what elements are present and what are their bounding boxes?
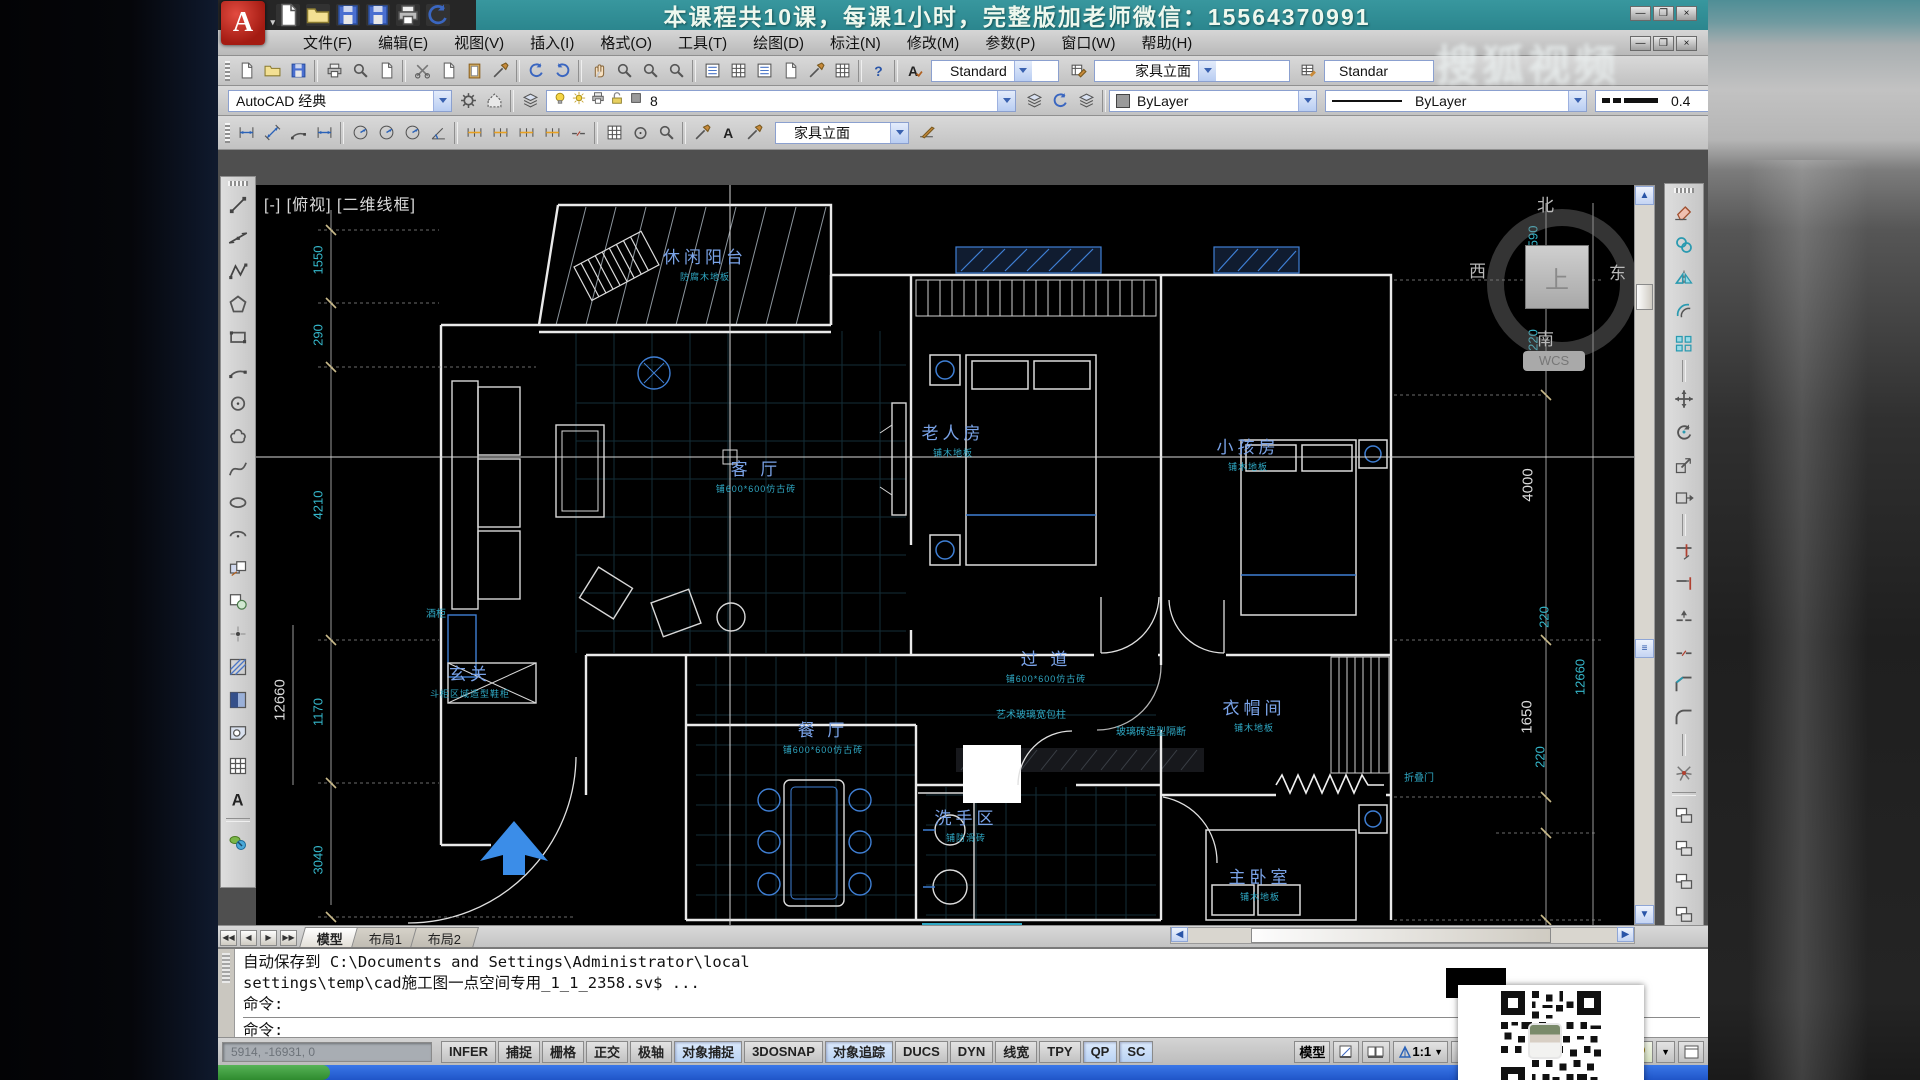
vscroll-thumb[interactable]: [1636, 284, 1653, 310]
plan-annotation: 折叠门: [1404, 769, 1434, 784]
layer-properties-icon[interactable]: [517, 88, 543, 114]
annotation-scale-pair-icon[interactable]: [224, 825, 252, 858]
status-toggle-极轴[interactable]: 极轴: [630, 1041, 672, 1063]
dim-left-4210: 4210: [311, 491, 326, 520]
compass-south[interactable]: 南: [1537, 325, 1554, 350]
restore-icon[interactable]: ❐: [1653, 6, 1674, 21]
break-at-point-icon[interactable]: [1670, 602, 1698, 635]
svg-text:A: A: [723, 125, 733, 141]
compass-north[interactable]: 北: [1537, 191, 1554, 216]
doc-close-icon[interactable]: ×: [1676, 36, 1697, 51]
status-toggle-DYN[interactable]: DYN: [950, 1041, 993, 1063]
dim-quick-icon[interactable]: [461, 120, 487, 146]
make-object-layer-icon[interactable]: [1021, 88, 1047, 114]
linetype-sample: [1332, 100, 1402, 102]
dim-right-12660: 12660: [1573, 659, 1588, 695]
fillet-icon[interactable]: [1670, 701, 1698, 734]
mdi-background: A: [218, 150, 1708, 1037]
qr-center-photo: [1528, 1023, 1562, 1059]
doc-restore-icon[interactable]: ❐: [1653, 36, 1674, 51]
menu-bar: 文件(F)编辑(E)视图(V)插入(I)格式(O)工具(T)绘图(D)标注(N)…: [218, 30, 1708, 56]
mtext-icon[interactable]: A: [224, 782, 252, 815]
plot-icon[interactable]: [321, 58, 347, 84]
dim-right-1650: 1650: [1519, 700, 1536, 733]
horizontal-scrollbar[interactable]: ◀ ▶: [1170, 927, 1635, 944]
dim-break-icon[interactable]: [565, 120, 591, 146]
plan-annotation: 艺术玻璃宽包柱: [996, 706, 1066, 721]
toolbar-separator: [594, 122, 598, 144]
dim-style-dropdown-top[interactable]: 家具立面: [1094, 60, 1290, 82]
window-buttons-app: — ❐ ×: [1630, 6, 1697, 21]
menu-item-12[interactable]: 帮助(H): [1128, 30, 1205, 55]
toolbar-separator: [402, 60, 406, 82]
region-icon[interactable]: [224, 716, 252, 749]
plan-annotation: 玻璃砖造型隔断: [1116, 723, 1186, 738]
plot-preview-icon[interactable]: [347, 58, 373, 84]
help-icon[interactable]: ?: [865, 58, 891, 84]
ellipse-icon[interactable]: [224, 485, 252, 518]
mirror-icon[interactable]: [1670, 261, 1698, 294]
room-label: 休闲阳台防腐木地板: [663, 243, 747, 283]
dim-left-12660: 12660: [272, 679, 289, 721]
dim-ordinate-icon[interactable]: [311, 120, 337, 146]
chevron-down-icon[interactable]: [1568, 91, 1586, 111]
arc-icon[interactable]: [224, 353, 252, 386]
gear-icon[interactable]: [455, 88, 481, 114]
room-label: 餐 厅铺600*600仿古砖: [783, 716, 864, 756]
lineweight-dropdown[interactable]: 0.4: [1595, 90, 1708, 112]
dim-aligned-icon[interactable]: [259, 120, 285, 146]
standard-toolbar: ? A Standard 家具立面 Standar: [218, 56, 1708, 86]
chevron-down-icon[interactable]: [1014, 61, 1032, 81]
group-icon[interactable]: [1670, 799, 1698, 832]
dim-continue-icon[interactable]: [513, 120, 539, 146]
make-block-icon[interactable]: [224, 584, 252, 617]
scroll-left-icon[interactable]: ◀: [1171, 927, 1188, 942]
workspace-dropdown[interactable]: AutoCAD 经典: [228, 90, 452, 112]
command-grip[interactable]: [218, 949, 235, 1037]
chevron-down-icon[interactable]: [1198, 61, 1216, 81]
tab-布局2[interactable]: 布局2: [410, 927, 479, 948]
copy-clip-icon[interactable]: [435, 58, 461, 84]
dim-space-icon[interactable]: [539, 120, 565, 146]
menu-item-5[interactable]: 格式(O): [587, 30, 665, 55]
undo-icon[interactable]: [426, 4, 450, 26]
open-icon[interactable]: [259, 58, 285, 84]
toolbar-separator: [1682, 360, 1686, 382]
status-toggle-对象捕捉[interactable]: 对象捕捉: [674, 1041, 742, 1063]
gradient-icon[interactable]: [224, 683, 252, 716]
layer-name: 8: [643, 93, 665, 109]
annotation-scale-value: 1:1: [1412, 1044, 1431, 1059]
plan-annotation: 酒柜: [426, 605, 446, 620]
hscroll-thumb[interactable]: [1251, 928, 1551, 943]
status-menu-chevron-icon[interactable]: ▼: [1656, 1041, 1675, 1063]
layer-dropdown[interactable]: 8: [546, 90, 1016, 112]
dim-tolerance-icon[interactable]: [601, 120, 627, 146]
viewcube-top[interactable]: 上: [1525, 245, 1589, 309]
toolbar-separator: [682, 122, 686, 144]
menu-item-11[interactable]: 窗口(W): [1048, 30, 1128, 55]
polygon-icon[interactable]: [224, 287, 252, 320]
dim-diameter-icon[interactable]: [399, 120, 425, 146]
new-icon[interactable]: [276, 4, 300, 26]
move-icon[interactable]: [1670, 382, 1698, 415]
text-style-dropdown[interactable]: Standard: [931, 60, 1059, 82]
toolbar-separator: [858, 60, 862, 82]
title-bar-banner: 本课程共10课，每课1小时，完整版加老师微信：15564370991: [476, 0, 1708, 30]
point-icon[interactable]: [224, 617, 252, 650]
trim-icon[interactable]: [1670, 536, 1698, 569]
toolbar-separator: [692, 60, 696, 82]
plot-icon[interactable]: [396, 4, 420, 26]
room-label: 主卧室铺木地板: [1229, 863, 1292, 903]
rotate-icon[interactable]: [1670, 415, 1698, 448]
spline-icon[interactable]: [224, 452, 252, 485]
scale-icon[interactable]: [1670, 448, 1698, 481]
dim-left-3040: 3040: [311, 846, 326, 875]
table-icon[interactable]: [224, 749, 252, 782]
text-style-icon[interactable]: A: [901, 58, 927, 84]
tool-palettes-icon[interactable]: [751, 58, 777, 84]
annotation-scale-button[interactable]: 1:1▼: [1393, 1041, 1448, 1063]
offset-icon[interactable]: [1670, 294, 1698, 327]
table-style-icon[interactable]: [1295, 58, 1321, 84]
coordinate-readout: 5914, -16931, 0: [222, 1042, 432, 1062]
dim-right-220: 220: [1533, 746, 1548, 768]
tab-last-icon[interactable]: ▶▶: [280, 930, 297, 946]
quick-access-toolbar: [276, 3, 450, 27]
chevron-down-icon[interactable]: [890, 123, 908, 143]
dim-arc-length-icon[interactable]: [285, 120, 311, 146]
menu-item-9[interactable]: 修改(M): [894, 30, 973, 55]
menu-item-8[interactable]: 标注(N): [817, 30, 894, 55]
layer-states-icon[interactable]: [1073, 88, 1099, 114]
status-toggle-INFER[interactable]: INFER: [441, 1041, 496, 1063]
quick-view-layouts-icon[interactable]: [1362, 1041, 1390, 1063]
zoom-realtime-icon[interactable]: [611, 58, 637, 84]
status-toggle-栅格[interactable]: 栅格: [542, 1041, 584, 1063]
scroll-up-icon[interactable]: ▲: [1635, 186, 1654, 205]
toolbar-separator: [578, 60, 582, 82]
scroll-down-icon[interactable]: ▼: [1635, 905, 1654, 924]
extend-icon[interactable]: [1670, 569, 1698, 602]
layers-properties-toolbar: AutoCAD 经典 8 ByLayer ByLayer: [218, 86, 1708, 116]
view-compass[interactable]: 北 西 东 南 上 WCS: [1481, 199, 1634, 389]
status-toggle-捕捉[interactable]: 捕捉: [498, 1041, 540, 1063]
quickcalc-icon[interactable]: [829, 58, 855, 84]
sheetset-manager-icon[interactable]: [777, 58, 803, 84]
toolbar-separator: [1682, 514, 1686, 536]
save-icon[interactable]: [336, 4, 360, 26]
dim-radius-icon[interactable]: [347, 120, 373, 146]
save-as-icon[interactable]: [366, 4, 390, 26]
dim-style-dropdown[interactable]: 家具立面: [775, 122, 909, 144]
status-toggle-SC[interactable]: SC: [1119, 1041, 1153, 1063]
chamfer-icon[interactable]: [1670, 668, 1698, 701]
tab-first-icon[interactable]: ◀◀: [220, 930, 237, 946]
plan-labels-layer: 休闲阳台防腐木地板客 厅铺600*600仿古砖老人房铺木地板小孩房铺木地板过 道…: [256, 185, 1634, 925]
room-label: 客 厅铺600*600仿古砖: [716, 455, 797, 495]
zoom-window-icon[interactable]: [637, 58, 663, 84]
dim-style-manager-icon[interactable]: [1065, 58, 1091, 84]
group-edit-icon[interactable]: [1670, 832, 1698, 865]
array-icon[interactable]: [1670, 327, 1698, 360]
dim-update-icon[interactable]: [913, 120, 939, 146]
linetype-dropdown[interactable]: ByLayer: [1325, 90, 1587, 112]
table-style-dropdown[interactable]: Standar: [1324, 60, 1434, 82]
compass-west[interactable]: 西: [1469, 257, 1486, 282]
dim-linear-icon[interactable]: [233, 120, 259, 146]
menu-item-7[interactable]: 绘图(D): [740, 30, 817, 55]
autocad-window: 本课程共10课，每课1小时，完整版加老师微信：15564370991 A▾ — …: [218, 0, 1708, 1080]
svg-text:A: A: [908, 63, 918, 79]
break-icon[interactable]: [1670, 635, 1698, 668]
open-icon[interactable]: [306, 4, 330, 26]
dim-right-4000: 4000: [1520, 468, 1537, 501]
sun-icon[interactable]: [572, 91, 586, 110]
layout-button[interactable]: [1333, 1041, 1359, 1063]
redo-icon[interactable]: [549, 58, 575, 84]
color-swatch-icon[interactable]: [629, 91, 643, 110]
dim-jogged-icon[interactable]: [373, 120, 399, 146]
plot-state-icon[interactable]: [591, 91, 605, 110]
chevron-down-icon[interactable]: [1298, 91, 1316, 111]
markup-icon[interactable]: [803, 58, 829, 84]
drawing-canvas[interactable]: [-] [俯视] [二维线框] 休闲阳台防腐木地板客 厅铺600*600仿古砖老…: [256, 185, 1634, 925]
vertical-scrollbar[interactable]: ▲ ≡ ▼: [1634, 185, 1655, 925]
insert-block-icon[interactable]: [224, 551, 252, 584]
doc-minimize-icon[interactable]: —: [1630, 36, 1651, 51]
save-icon[interactable]: [285, 58, 311, 84]
minimize-icon[interactable]: —: [1630, 6, 1651, 21]
polyline-icon[interactable]: [224, 254, 252, 287]
stretch-icon[interactable]: [1670, 481, 1698, 514]
room-label: 玄关斗柜区域造型鞋柜: [430, 660, 510, 700]
toolbar-separator: [1682, 734, 1686, 756]
menu-item-3[interactable]: 视图(V): [441, 30, 517, 55]
dimension-toolbar: A 家具立面: [218, 116, 1708, 150]
designcenter-icon[interactable]: [725, 58, 751, 84]
model-space-button[interactable]: 模型: [1294, 1041, 1330, 1063]
toolbar-separator: [516, 60, 520, 82]
menu-item-1[interactable]: 文件(F): [290, 30, 365, 55]
chevron-down-icon[interactable]: [433, 91, 451, 111]
status-toggle-DUCS[interactable]: DUCS: [895, 1041, 948, 1063]
course-banner-text: 本课程共10课，每课1小时，完整版加老师微信：15564370991: [663, 0, 1520, 32]
svg-text:?: ?: [874, 63, 882, 79]
workspace-settings-icon[interactable]: [481, 88, 507, 114]
menu-item-2[interactable]: 编辑(E): [365, 30, 441, 55]
room-label: 衣帽间铺木地板: [1223, 694, 1286, 734]
revcloud-icon[interactable]: [224, 419, 252, 452]
unlock-icon[interactable]: [610, 91, 624, 110]
hatch-icon[interactable]: [224, 650, 252, 683]
dim-inspect-icon[interactable]: [653, 120, 679, 146]
color-swatch: [1116, 94, 1130, 108]
lineweight-sample: [1602, 98, 1658, 103]
ungroup-icon[interactable]: [1670, 865, 1698, 898]
svg-text:A: A: [232, 791, 244, 809]
room-label: 老人房铺木地板: [922, 419, 985, 459]
room-label: 小孩房铺木地板: [1217, 433, 1280, 473]
tab-next-icon[interactable]: ▶: [260, 930, 277, 946]
window-buttons-drawing: — ❐ ×: [1630, 36, 1697, 51]
compass-east[interactable]: 东: [1609, 259, 1626, 284]
publish-icon[interactable]: [373, 58, 399, 84]
menu-item-6[interactable]: 工具(T): [665, 30, 740, 55]
qnew-icon[interactable]: [233, 58, 259, 84]
status-toggle-3DOSNAP[interactable]: 3DOSNAP: [744, 1041, 823, 1063]
status-toggle-线宽[interactable]: 线宽: [995, 1041, 1037, 1063]
copy-icon[interactable]: [1670, 228, 1698, 261]
zoom-previous-icon[interactable]: [663, 58, 689, 84]
scroll-right-icon[interactable]: ▶: [1617, 927, 1634, 942]
draw-toolbar: A: [220, 176, 256, 888]
toolbar-separator: [314, 60, 318, 82]
autocad-app-icon[interactable]: A▾: [221, 1, 265, 45]
chevron-down-icon[interactable]: [997, 91, 1015, 111]
paste-icon[interactable]: [461, 58, 487, 84]
properties-icon[interactable]: [699, 58, 725, 84]
menu-item-4[interactable]: 插入(I): [517, 30, 587, 55]
dim-update-icon[interactable]: [741, 120, 767, 146]
layer-previous-icon[interactable]: [1047, 88, 1073, 114]
dim-center-mark-icon[interactable]: [627, 120, 653, 146]
bulb-icon[interactable]: [553, 91, 567, 110]
dim-left-1170: 1170: [311, 698, 326, 726]
toolbar-separator: [340, 122, 344, 144]
xline-icon[interactable]: [224, 221, 252, 254]
status-toggle-对象追踪[interactable]: 对象追踪: [825, 1041, 893, 1063]
video-right-blur-band: [1708, 0, 1920, 1080]
line-icon[interactable]: [224, 188, 252, 221]
menu-item-10[interactable]: 参数(P): [972, 30, 1048, 55]
dim-angular-icon[interactable]: [425, 120, 451, 146]
ellipse-arc-icon[interactable]: [224, 518, 252, 551]
video-left-blur-band: [0, 0, 218, 1080]
dim-left-290: 290: [311, 324, 326, 346]
clean-screen-icon[interactable]: [1678, 1041, 1704, 1063]
toolbar-separator: [454, 122, 458, 144]
scroll-mid-icon[interactable]: ≡: [1635, 639, 1654, 658]
dim-left-1550: 1550: [311, 246, 326, 275]
dim-text-edit-icon[interactable]: A: [715, 120, 741, 146]
rectangle-icon[interactable]: [224, 320, 252, 353]
start-button-fragment[interactable]: [218, 1065, 330, 1080]
tab-prev-icon[interactable]: ◀: [240, 930, 257, 946]
status-toggle-TPY[interactable]: TPY: [1039, 1041, 1080, 1063]
matchprop-icon[interactable]: [487, 58, 513, 84]
cut-icon[interactable]: [409, 58, 435, 84]
color-dropdown[interactable]: ByLayer: [1109, 90, 1317, 112]
dim-right-220: 220: [1537, 606, 1552, 628]
room-label: 过 道铺600*600仿古砖: [1006, 645, 1087, 685]
pan-icon[interactable]: [585, 58, 611, 84]
video-frame: 本课程共10课，每课1小时，完整版加老师微信：15564370991 A▾ — …: [0, 0, 1920, 1080]
status-toggle-QP[interactable]: QP: [1083, 1041, 1118, 1063]
erase-icon[interactable]: [1670, 195, 1698, 228]
room-label: 洗手区铺防滑砖: [935, 804, 998, 844]
dim-baseline-icon[interactable]: [487, 120, 513, 146]
explode-icon[interactable]: [1670, 756, 1698, 789]
modify-toolbar: ABC: [1664, 183, 1704, 951]
circle-icon[interactable]: [224, 386, 252, 419]
wcs-badge[interactable]: WCS: [1523, 351, 1585, 371]
undo-icon[interactable]: [523, 58, 549, 84]
status-toggle-正交[interactable]: 正交: [586, 1041, 628, 1063]
dim-edit-icon[interactable]: [689, 120, 715, 146]
close-icon[interactable]: ×: [1676, 6, 1697, 21]
